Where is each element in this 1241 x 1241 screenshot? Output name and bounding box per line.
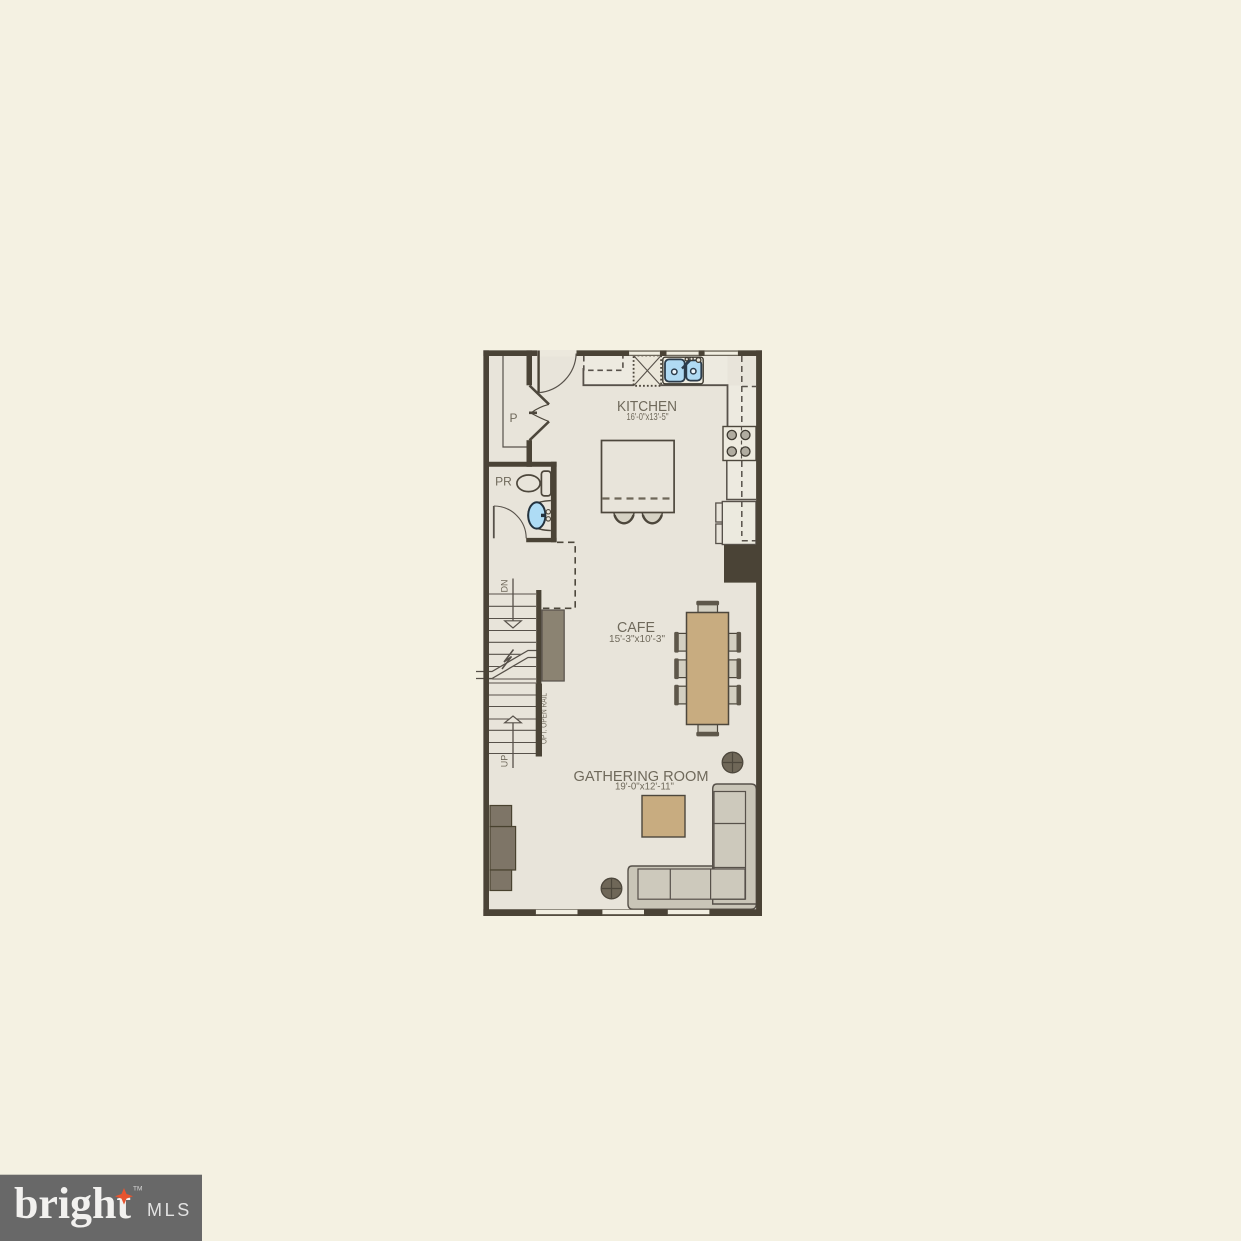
svg-text:15'-3"x10'-3": 15'-3"x10'-3" xyxy=(609,633,665,645)
svg-text:TM: TM xyxy=(133,1186,142,1193)
svg-text:DN: DN xyxy=(500,580,510,593)
svg-text:P: P xyxy=(509,411,517,425)
svg-text:MLS: MLS xyxy=(147,1200,192,1220)
svg-text:19'-0"x12'-11": 19'-0"x12'-11" xyxy=(615,781,674,793)
svg-text:16'-0"x13'-5": 16'-0"x13'-5" xyxy=(627,411,669,423)
svg-text:UP: UP xyxy=(500,755,510,768)
svg-text:bright: bright xyxy=(14,1179,131,1228)
svg-text:PR: PR xyxy=(495,475,512,489)
